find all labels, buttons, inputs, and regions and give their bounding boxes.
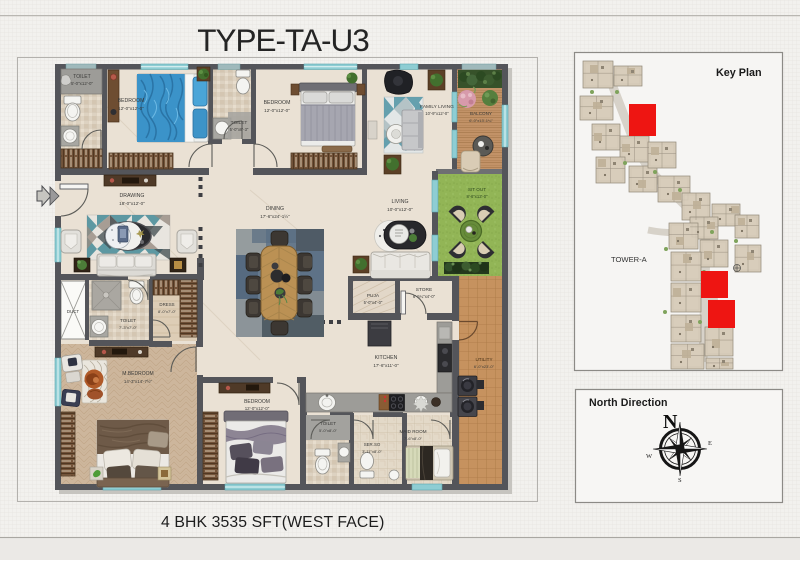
svg-text:12'-0"x12'-0": 12'-0"x12'-0" bbox=[264, 108, 290, 113]
svg-text:BALCONY: BALCONY bbox=[470, 111, 492, 116]
svg-text:TOILET: TOILET bbox=[73, 74, 90, 80]
svg-text:W: W bbox=[646, 453, 653, 460]
svg-text:DINING: DINING bbox=[266, 206, 284, 212]
svg-text:TOILET: TOILET bbox=[320, 421, 336, 426]
svg-text:FAMILY LIVING: FAMILY LIVING bbox=[420, 104, 454, 110]
svg-text:SER.SO: SER.SO bbox=[364, 442, 381, 447]
svg-text:5'-0"x8'-3": 5'-0"x8'-3" bbox=[230, 127, 249, 132]
svg-text:8'-0"x7'-0": 8'-0"x7'-0" bbox=[158, 309, 177, 314]
svg-text:14'-3"x14'-7½": 14'-3"x14'-7½" bbox=[124, 379, 153, 384]
svg-text:SIT OUT: SIT OUT bbox=[468, 187, 486, 192]
svg-text:5'-0"x4'-0": 5'-0"x4'-0" bbox=[364, 300, 383, 305]
svg-text:DUCT: DUCT bbox=[67, 309, 80, 314]
svg-text:10'-9"x12'-0": 10'-9"x12'-0" bbox=[425, 111, 449, 116]
svg-text:STORE: STORE bbox=[416, 287, 432, 293]
svg-text:UTILITY: UTILITY bbox=[475, 357, 492, 362]
svg-text:6'-0"x23'-0": 6'-0"x23'-0" bbox=[474, 364, 495, 369]
svg-text:BEDROOM: BEDROOM bbox=[118, 98, 145, 104]
svg-text:BEDROOM: BEDROOM bbox=[244, 399, 270, 405]
svg-text:LIVING: LIVING bbox=[391, 199, 408, 205]
svg-text:TYPE-TA-U3: TYPE-TA-U3 bbox=[197, 22, 369, 58]
svg-text:M.BEDROOM: M.BEDROOM bbox=[122, 371, 153, 377]
svg-text:17'-6"x11'-0": 17'-6"x11'-0" bbox=[373, 363, 399, 368]
svg-text:TOILET: TOILET bbox=[231, 120, 248, 126]
svg-text:8'-6"x12'-0": 8'-6"x12'-0" bbox=[466, 194, 488, 199]
svg-text:4 BHK 3535 SFT(WEST FACE): 4 BHK 3535 SFT(WEST FACE) bbox=[161, 514, 384, 531]
svg-text:5'-0"x8'-0": 5'-0"x8'-0" bbox=[319, 428, 338, 433]
svg-text:TOWER-A: TOWER-A bbox=[611, 255, 648, 264]
svg-text:5'-0"x12'-0": 5'-0"x12'-0" bbox=[71, 81, 94, 86]
svg-text:DRESS: DRESS bbox=[159, 302, 174, 307]
svg-text:TOILET: TOILET bbox=[120, 318, 136, 323]
svg-text:E: E bbox=[708, 440, 712, 447]
svg-text:DRAWING: DRAWING bbox=[120, 193, 145, 199]
svg-text:Key Plan: Key Plan bbox=[716, 67, 762, 79]
svg-text:BEDROOM: BEDROOM bbox=[264, 100, 291, 106]
svg-text:7'-3"x7'-0": 7'-3"x7'-0" bbox=[119, 325, 138, 330]
svg-text:6'-5¼"x4'-0": 6'-5¼"x4'-0" bbox=[413, 294, 436, 299]
svg-text:3'-11"x8'-0": 3'-11"x8'-0" bbox=[362, 449, 382, 454]
svg-text:North Direction: North Direction bbox=[589, 397, 668, 409]
svg-text:7'-6"x8'-0": 7'-6"x8'-0" bbox=[404, 436, 423, 441]
svg-text:S: S bbox=[678, 477, 682, 484]
svg-text:KITCHEN: KITCHEN bbox=[375, 355, 398, 361]
svg-text:18'-0"x12'-0": 18'-0"x12'-0" bbox=[119, 201, 145, 206]
svg-text:12'-0"x12'-0": 12'-0"x12'-0" bbox=[245, 406, 270, 411]
svg-text:17'-6"x24'-1½": 17'-6"x24'-1½" bbox=[260, 213, 290, 219]
svg-text:10'-0"x12'-0": 10'-0"x12'-0" bbox=[387, 207, 413, 212]
svg-text:12'-0"x12'-0": 12'-0"x12'-0" bbox=[118, 106, 144, 111]
svg-text:MAID ROOM: MAID ROOM bbox=[399, 429, 426, 434]
svg-text:PUJA: PUJA bbox=[367, 293, 380, 299]
svg-text:6'-0"x13'-1¼": 6'-0"x13'-1¼" bbox=[469, 118, 493, 123]
